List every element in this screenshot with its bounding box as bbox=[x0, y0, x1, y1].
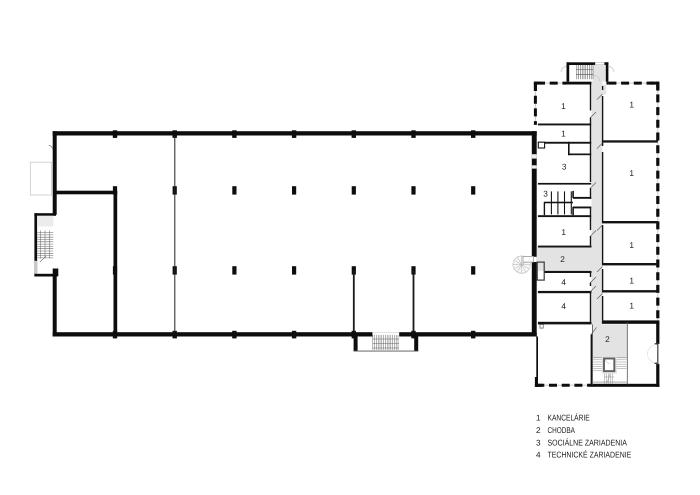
svg-text:3: 3 bbox=[562, 162, 567, 172]
svg-text:1: 1 bbox=[629, 275, 634, 285]
svg-text:4: 4 bbox=[561, 277, 566, 287]
svg-text:1: 1 bbox=[561, 101, 566, 111]
svg-text:2: 2 bbox=[560, 254, 565, 264]
svg-text:3: 3 bbox=[536, 438, 541, 447]
svg-text:2: 2 bbox=[536, 426, 541, 435]
svg-text:1: 1 bbox=[629, 240, 634, 250]
svg-text:TECHNICKÉ ZARIADENIE: TECHNICKÉ ZARIADENIE bbox=[548, 450, 632, 460]
svg-text:1: 1 bbox=[561, 227, 566, 237]
svg-text:1: 1 bbox=[629, 301, 634, 311]
svg-text:1: 1 bbox=[536, 414, 541, 423]
svg-text:1: 1 bbox=[629, 100, 634, 110]
svg-text:1: 1 bbox=[629, 168, 634, 178]
svg-text:CHODBA: CHODBA bbox=[548, 425, 576, 435]
svg-text:1: 1 bbox=[561, 128, 566, 138]
svg-text:2: 2 bbox=[605, 334, 610, 344]
svg-text:4: 4 bbox=[561, 301, 566, 311]
svg-text:SOCIÁLNE ZARIADENIA: SOCIÁLNE ZARIADENIA bbox=[548, 437, 628, 447]
svg-text:4: 4 bbox=[536, 451, 541, 460]
svg-text:3: 3 bbox=[543, 188, 548, 198]
svg-text:KANCELÁRIE: KANCELÁRIE bbox=[548, 413, 591, 423]
